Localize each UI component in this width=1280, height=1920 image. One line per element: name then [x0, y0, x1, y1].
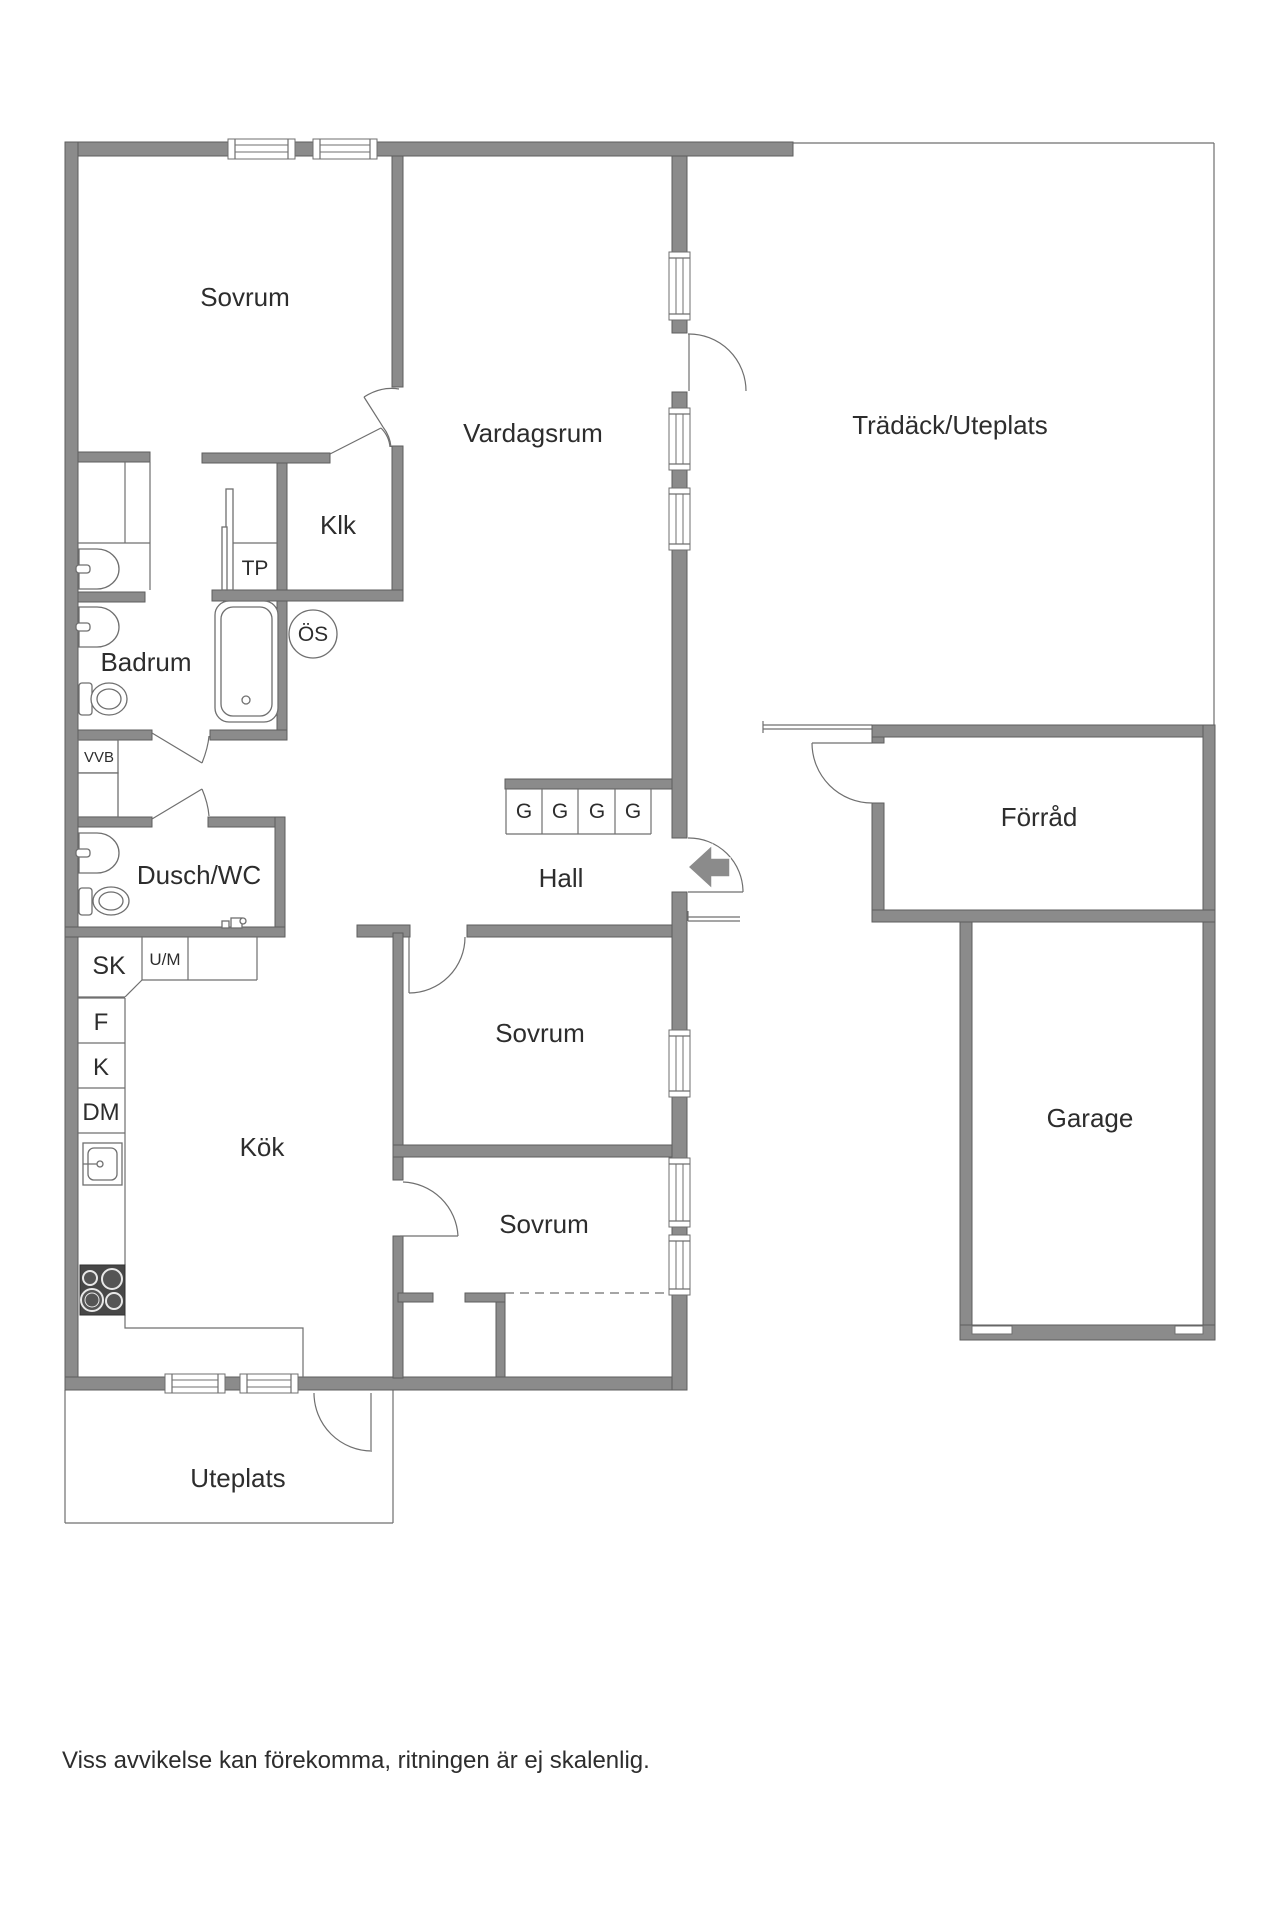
- wall-east: [672, 156, 687, 252]
- door-swing-icon: [314, 1393, 372, 1451]
- floor-plan-page: Sovrum Vardagsrum Trädäck/Uteplats Klk T…: [0, 0, 1280, 1920]
- wardrobe-label: G: [552, 800, 568, 823]
- room-label-sovrum-mid: Sovrum: [495, 1018, 585, 1048]
- wall-forrad-south: [872, 910, 1215, 922]
- floor-plan-drawing: Sovrum Vardagsrum Trädäck/Uteplats Klk T…: [0, 0, 1280, 1920]
- washbasin-icon: [76, 607, 119, 647]
- wall-dusch-east: [275, 817, 285, 937]
- wall-south: [65, 1377, 687, 1390]
- door-swing-icon: [152, 733, 209, 763]
- wall-north: [65, 142, 793, 156]
- room-label-sovrum-s: Sovrum: [499, 1209, 589, 1239]
- wall-badrum-south: [210, 730, 287, 740]
- wall-bedroom-nw-south: [78, 452, 150, 462]
- room-label-kok: Kök: [240, 1132, 286, 1162]
- exterior-outlines: [65, 143, 1214, 1523]
- door-swing-icon: [330, 428, 390, 454]
- shower-mixer-icon: [222, 918, 246, 928]
- wardrobe-label: G: [516, 800, 532, 823]
- window-icon: [669, 1235, 690, 1295]
- wall-bedroom-nw-east: [392, 156, 403, 387]
- room-label-klk: Klk: [320, 510, 357, 540]
- wall-klk-east: [392, 446, 403, 601]
- wardrobe-label: G: [589, 800, 605, 823]
- room-label-badrum: Badrum: [100, 647, 191, 677]
- appliance-label-f: F: [94, 1009, 109, 1036]
- wall-closet: [398, 1293, 433, 1302]
- wall-dusch-south: [65, 927, 285, 937]
- room-label-uteplats: Uteplats: [190, 1463, 285, 1493]
- room-label-forrad: Förråd: [1001, 802, 1078, 832]
- window-icon: [240, 1374, 298, 1393]
- door-swing-icon: [400, 1182, 458, 1236]
- wall-east: [672, 320, 687, 333]
- wall-wardrobe: [505, 779, 672, 789]
- wall-dusch-north: [208, 817, 285, 827]
- wall-klk-south: [212, 590, 403, 601]
- wall-east: [672, 892, 687, 1030]
- wall-east: [672, 1295, 687, 1390]
- wardrobe-label: G: [625, 800, 641, 823]
- wall-bedrooms-west: [393, 1236, 403, 1378]
- appliance-label-dm: DM: [82, 1099, 119, 1126]
- stove-icon: [80, 1265, 125, 1315]
- room-label-vardagsrum: Vardagsrum: [463, 418, 603, 448]
- windows: [165, 139, 690, 1393]
- labels: Sovrum Vardagsrum Trädäck/Uteplats Klk T…: [62, 282, 1133, 1774]
- wall-bedrooms-west: [393, 933, 403, 1180]
- window-icon: [228, 139, 295, 159]
- toilet-icon: [79, 887, 129, 915]
- room-label-sk: SK: [92, 952, 126, 980]
- wall-forrad-east: [1203, 725, 1215, 922]
- garage-door-jamb: [972, 1326, 1012, 1334]
- window-icon: [669, 408, 690, 470]
- room-label-tp: TP: [242, 557, 269, 580]
- wall-klk-north: [202, 453, 330, 463]
- kitchen-counter-line: [125, 1315, 303, 1377]
- kitchen-sink-icon: [83, 1143, 122, 1185]
- room-label-hall: Hall: [539, 863, 584, 893]
- room-label-os: ÖS: [298, 623, 328, 646]
- wall-east: [672, 1227, 687, 1235]
- window-icon: [165, 1374, 225, 1393]
- wall-east: [672, 470, 687, 488]
- utility-box: [78, 773, 118, 817]
- window-icon: [313, 139, 377, 159]
- wall-bedroom-divider: [393, 1145, 672, 1157]
- wall-garage-east: [1203, 922, 1215, 1340]
- window-icon: [669, 1158, 690, 1227]
- washbasin-icon: [76, 833, 119, 873]
- door-swing-icon: [364, 388, 399, 447]
- disclaimer-text: Viss avvikelse kan förekomma, ritningen …: [62, 1747, 650, 1774]
- wall-dusch-north: [78, 817, 152, 827]
- walls: [65, 142, 1215, 1390]
- window-icon: [669, 488, 690, 550]
- toilet-icon: [79, 683, 127, 715]
- room-label-vvb: VVB: [84, 749, 114, 766]
- wall-badrum-north: [78, 592, 145, 602]
- closet-chamfer: [125, 980, 142, 997]
- wall-east: [672, 550, 687, 838]
- wall-west: [65, 142, 78, 1390]
- door-swing-icon: [688, 334, 746, 391]
- wall-garage-west: [960, 922, 972, 1340]
- wall-east: [672, 392, 687, 408]
- entrance-arrow-icon: [688, 845, 730, 889]
- wall-badrum-south: [78, 730, 152, 740]
- window-icon: [669, 1030, 690, 1097]
- wall-forrad-west: [872, 803, 884, 910]
- wall-east: [672, 1097, 687, 1158]
- wall-forrad-north: [872, 725, 1215, 737]
- doors: [152, 334, 872, 1451]
- door-swing-icon: [812, 743, 872, 803]
- appliance-label-k: K: [93, 1054, 109, 1081]
- room-label-sovrum-nw: Sovrum: [200, 282, 290, 312]
- room-label-garage: Garage: [1047, 1103, 1134, 1133]
- wall-forrad-west: [872, 737, 884, 743]
- garage-door-jamb: [1175, 1326, 1203, 1334]
- room-label-dusch-wc: Dusch/WC: [137, 860, 261, 890]
- door-swing-icon: [152, 789, 209, 819]
- door-swing-icon: [409, 937, 465, 993]
- window-icon: [669, 252, 690, 320]
- wall-closet: [496, 1302, 505, 1377]
- bathtub-icon: [215, 601, 278, 722]
- tall-cabinet-icon: [222, 527, 227, 590]
- room-label-um: U/M: [149, 950, 180, 969]
- room-label-tradack: Trädäck/Uteplats: [852, 410, 1048, 440]
- washbasin-icon: [76, 549, 119, 589]
- wall-hall-south: [467, 925, 672, 937]
- wall-closet: [465, 1293, 505, 1302]
